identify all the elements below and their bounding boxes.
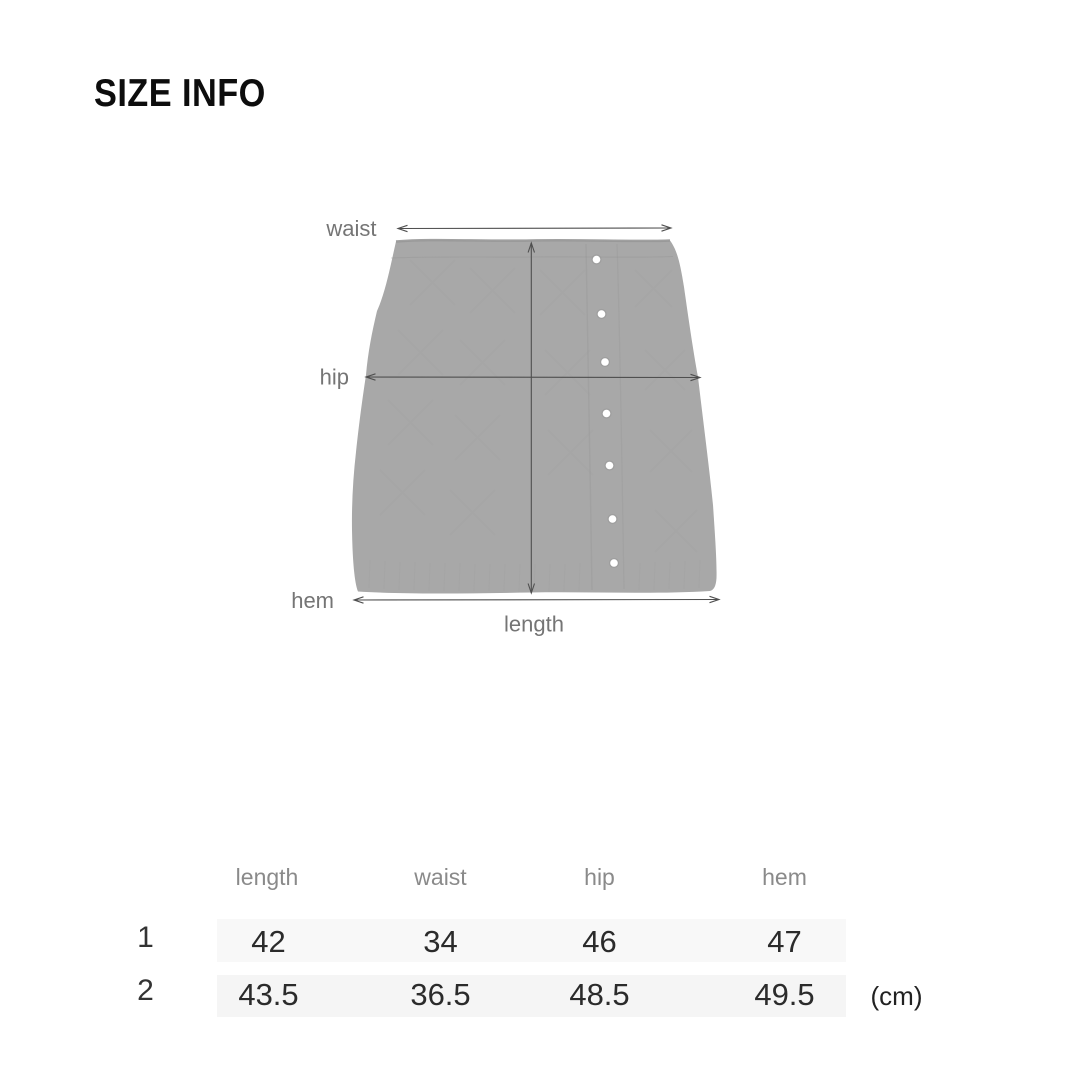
svg-text:length: length [504,612,564,637]
svg-text:hip: hip [320,365,349,390]
svg-text:waist: waist [325,216,376,241]
svg-text:hem: hem [291,588,334,613]
